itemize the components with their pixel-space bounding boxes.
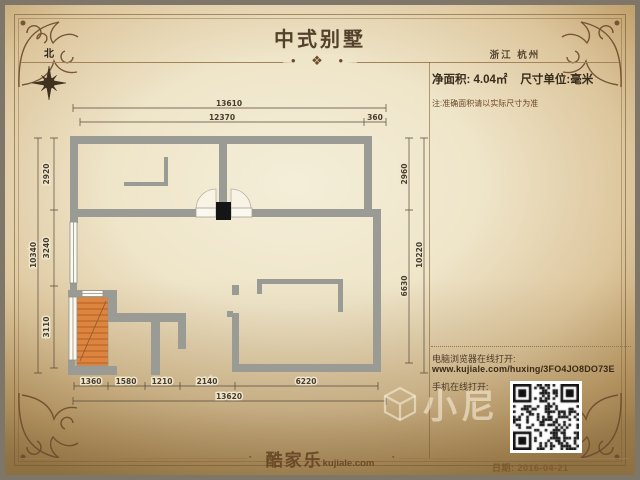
qr-code-box: [510, 381, 582, 453]
dim-right-1: 2960: [400, 164, 409, 185]
dim-bottom-3: 1210: [152, 377, 173, 386]
dim-right-2: 6630: [400, 276, 409, 297]
dim-bottom-1: 1360: [81, 377, 102, 386]
dim-top-main: 12370: [209, 113, 235, 122]
door-column: [216, 202, 231, 220]
logo-en-text: kujiale.com: [323, 458, 375, 469]
mobile-open-label: 手机在线打开:: [432, 380, 489, 393]
staircase: [77, 297, 108, 366]
dim-top-offset: 360: [367, 113, 383, 122]
export-date: 日期: 2016-04-21: [492, 461, 569, 474]
dim-left-total: 10340: [29, 242, 38, 268]
dim-top-total: 13610: [216, 99, 242, 108]
floorplan-export-page: 中式别墅 • ❖ • 浙江 杭州 净面积: 4.04㎡ 尺寸单位:毫米 注:准确…: [0, 0, 640, 480]
dim-left-1: 2920: [42, 164, 51, 185]
walls: [68, 136, 381, 375]
dim-bottom-total: 13620: [216, 392, 242, 401]
dim-left-3: 3110: [42, 317, 51, 338]
share-url: www.kujiale.com/huxing/3FO4JO8DO73E: [432, 364, 615, 374]
qr-code: [513, 384, 579, 450]
north-label: 北: [44, 47, 54, 60]
dim-bottom-5: 6220: [296, 377, 317, 386]
dim-bottom-4: 2140: [197, 377, 218, 386]
compass-icon: 北: [32, 47, 66, 100]
dim-bottom-2: 1580: [116, 377, 137, 386]
logo-cn-text: 酷家乐: [266, 451, 323, 470]
dim-left-2: 3240: [42, 238, 51, 259]
panel-dashed-divider: [431, 346, 631, 347]
dim-right-total: 10220: [415, 242, 424, 268]
